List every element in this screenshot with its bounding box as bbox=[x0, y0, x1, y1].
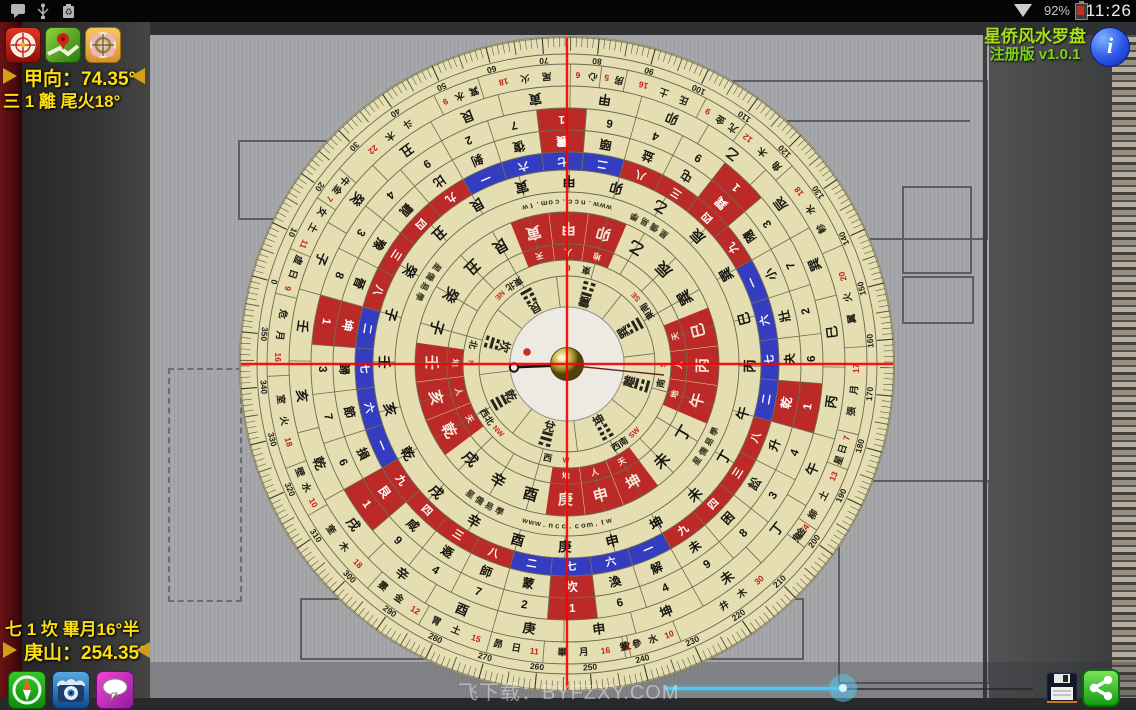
svg-text:申: 申 bbox=[591, 621, 606, 637]
facing-detail: 三 1 離 尾火18° bbox=[3, 87, 120, 112]
svg-text:尾: 尾 bbox=[541, 70, 553, 82]
floorplan-sofa bbox=[902, 186, 972, 274]
svg-text:巳: 巳 bbox=[824, 325, 840, 340]
svg-text:月: 月 bbox=[849, 385, 861, 396]
svg-text:丙: 丙 bbox=[823, 394, 840, 409]
svg-text:3: 3 bbox=[316, 366, 328, 373]
svg-text:乾: 乾 bbox=[778, 396, 795, 410]
svg-text:170: 170 bbox=[864, 386, 875, 401]
watermark: 飞下载：BYFZXY.COM bbox=[458, 676, 679, 705]
svg-text:地: 地 bbox=[562, 470, 570, 480]
svg-text:♻: ♻ bbox=[64, 7, 72, 17]
floorplan-table bbox=[902, 276, 974, 324]
svg-text:坤: 坤 bbox=[339, 318, 356, 332]
svg-text:甲: 甲 bbox=[597, 91, 612, 108]
svg-text:260: 260 bbox=[530, 661, 545, 672]
svg-text:庚: 庚 bbox=[558, 490, 573, 508]
svg-text:日: 日 bbox=[510, 642, 521, 654]
clock: 11:26 bbox=[1086, 1, 1132, 21]
svg-text:11: 11 bbox=[529, 646, 539, 657]
app-screen: ♻ 92% 11:26 甲向：74.35° 三 1 離 尾火18° 七 1 坎 … bbox=[0, 0, 1136, 710]
svg-text:地: 地 bbox=[450, 359, 460, 367]
zoom-slider-handle[interactable] bbox=[829, 674, 857, 702]
svg-text:16: 16 bbox=[273, 352, 283, 362]
svg-text:.: . bbox=[563, 198, 565, 207]
svg-text:室: 室 bbox=[274, 394, 287, 405]
zoom-slider-track-rest[interactable] bbox=[843, 688, 1033, 690]
svg-text:壬: 壬 bbox=[376, 355, 392, 369]
message-icon bbox=[10, 3, 26, 21]
svg-text:.: . bbox=[569, 521, 571, 530]
camera-view-icon[interactable] bbox=[52, 671, 90, 709]
svg-text:c: c bbox=[568, 197, 572, 206]
svg-text:寅: 寅 bbox=[528, 91, 543, 107]
app-title: 星侨风水罗盘 bbox=[984, 28, 1086, 47]
svg-text:丙: 丙 bbox=[694, 358, 711, 373]
floorplan-dashed-area bbox=[168, 368, 242, 602]
svg-text:月: 月 bbox=[578, 647, 589, 659]
share-icon[interactable] bbox=[1082, 669, 1120, 710]
svg-text:心: 心 bbox=[587, 70, 598, 82]
svg-text:壬: 壬 bbox=[294, 319, 311, 334]
camera-overlay-icon[interactable] bbox=[85, 27, 121, 63]
svg-text:80: 80 bbox=[591, 56, 602, 67]
sitting-right-arrow[interactable] bbox=[136, 642, 150, 658]
svg-text:c: c bbox=[555, 198, 560, 207]
svg-text:70: 70 bbox=[539, 56, 549, 67]
luopan-app-icon[interactable] bbox=[5, 27, 41, 63]
save-icon[interactable] bbox=[1046, 672, 1078, 709]
facing-left-arrow[interactable] bbox=[3, 68, 17, 84]
wifi-icon bbox=[1014, 4, 1032, 17]
facing-right-arrow[interactable] bbox=[131, 68, 145, 84]
svg-text:16: 16 bbox=[600, 645, 611, 656]
svg-text:6: 6 bbox=[575, 70, 580, 80]
svg-text:c: c bbox=[562, 521, 566, 530]
svg-text:c: c bbox=[555, 521, 560, 530]
sitting-detail: 七 1 坎 畢月16°半 bbox=[5, 615, 139, 640]
svg-text:c: c bbox=[574, 521, 579, 530]
svg-text:350: 350 bbox=[259, 327, 270, 342]
map-locate-icon[interactable] bbox=[45, 27, 81, 63]
info-button[interactable]: i bbox=[1090, 27, 1130, 67]
svg-text:月: 月 bbox=[273, 329, 285, 341]
svg-text:160: 160 bbox=[865, 333, 876, 348]
svg-text:250: 250 bbox=[583, 662, 598, 673]
photo-dark-edge bbox=[22, 22, 150, 710]
svg-text:340: 340 bbox=[258, 380, 269, 395]
svg-text:甲: 甲 bbox=[562, 173, 576, 188]
compass-mode-icon[interactable] bbox=[8, 671, 46, 709]
svg-text:壬: 壬 bbox=[422, 355, 439, 370]
status-bar: ♻ 92% 11:26 bbox=[0, 0, 1136, 22]
battery-percent: 92% bbox=[1044, 3, 1070, 18]
svg-text:6: 6 bbox=[806, 355, 818, 362]
usb-icon bbox=[36, 3, 50, 22]
photo-dark-right bbox=[989, 22, 1112, 710]
photo-red-edge bbox=[0, 22, 22, 710]
svg-text:1: 1 bbox=[569, 603, 576, 615]
zoom-slider-track[interactable] bbox=[665, 687, 843, 690]
app-edition: 注册版 v1.0.1 bbox=[984, 47, 1086, 64]
svg-text:甲: 甲 bbox=[561, 219, 576, 236]
svg-text:亥: 亥 bbox=[294, 388, 310, 403]
svg-text:庚: 庚 bbox=[558, 538, 572, 554]
app-title-block: 星侨风水罗盘 注册版 v1.0.1 bbox=[984, 28, 1086, 63]
sitting-left-arrow[interactable] bbox=[3, 642, 17, 658]
floorplan-wall bbox=[983, 22, 987, 710]
svg-text:蒙: 蒙 bbox=[521, 575, 535, 592]
svg-text:庚: 庚 bbox=[522, 620, 537, 637]
comment-icon[interactable] bbox=[96, 671, 134, 709]
luopan-dial[interactable]: 0102030405060708090100110120130140150160… bbox=[237, 34, 897, 694]
battery-recycle-icon: ♻ bbox=[62, 3, 75, 22]
svg-text:1: 1 bbox=[558, 113, 565, 125]
sitting-readout: 庚山：254.35° bbox=[24, 638, 147, 665]
svg-text:c: c bbox=[574, 198, 579, 207]
svg-text:丙: 丙 bbox=[742, 359, 757, 373]
photo-paper-edge bbox=[1112, 22, 1136, 710]
